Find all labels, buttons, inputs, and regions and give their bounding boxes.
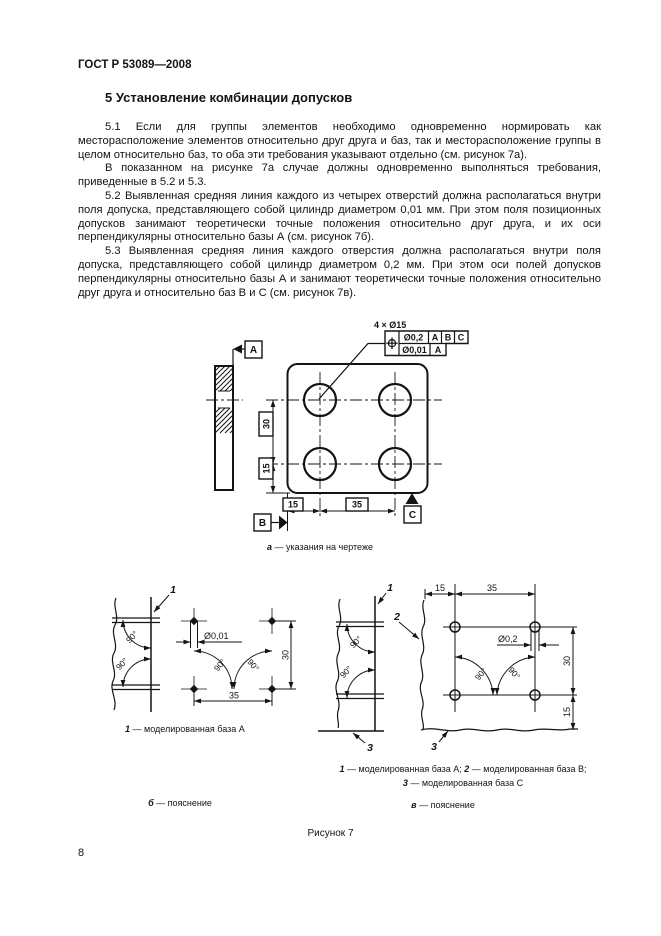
figure-7a-caption-text: — указания на чертеже bbox=[272, 542, 373, 552]
figure-7v-legend-2: 3 — моделированная база С bbox=[313, 778, 613, 788]
angle-90-b3: 90° bbox=[212, 657, 228, 673]
body-text: 5.1 Если для группы элементов необходимо… bbox=[78, 121, 601, 300]
ref-3-left-label: 3 bbox=[367, 742, 373, 754]
figure-7b-caption: б — пояснение bbox=[100, 798, 260, 808]
datum-b-label: B bbox=[259, 518, 266, 529]
fcf-datum-1b: B bbox=[445, 333, 452, 343]
hatch-top bbox=[215, 366, 233, 391]
zone-dia-001: Ø0,01 bbox=[204, 631, 229, 641]
ref-1-label: 1 bbox=[170, 584, 176, 596]
figure-7a-caption: а — указания на чертеже bbox=[200, 542, 440, 552]
datum-b-flag: B bbox=[254, 514, 288, 531]
figure-7b-legend: 1 — моделированная база А bbox=[125, 724, 245, 734]
datum-a-flag: A bbox=[233, 341, 262, 366]
holes-count-label: 4 × Ø15 bbox=[374, 320, 406, 330]
figure-7a-plate bbox=[266, 364, 442, 516]
paragraph-5-2: 5.2 Выявленная средняя линия каждого из … bbox=[78, 190, 601, 245]
figure-7a-drawing: A bbox=[200, 315, 500, 565]
angle-90-v4: 90° bbox=[506, 665, 522, 681]
paragraph-5-1-note: В показанном на рисунке 7а случае должны… bbox=[78, 162, 601, 190]
fcf-tolerance-1: Ø0,2 bbox=[404, 333, 424, 343]
figure-7v-front-view: 2 15 35 bbox=[393, 583, 578, 753]
dimension-bottom: 15 35 bbox=[283, 493, 395, 531]
dim-35-top: 35 bbox=[487, 583, 497, 593]
zone-dia-02: Ø0,2 bbox=[498, 634, 518, 644]
figure-7v-legend-1: 1 — моделированная база А; 2 — моделиров… bbox=[313, 764, 613, 774]
page-number: 8 bbox=[78, 847, 84, 859]
fcf-datum-1c: C bbox=[458, 333, 465, 343]
dim-35-horizontal: 35 bbox=[352, 500, 362, 510]
document-header: ГОСТ Р 53089—2008 bbox=[78, 59, 191, 71]
datum-c-label: C bbox=[409, 510, 416, 521]
legend-text-3v: — моделированная база С bbox=[408, 778, 523, 788]
figure-7b-front-view: Ø0,01 90° 90° 35 30 bbox=[176, 608, 296, 706]
section-heading: 5 Установление комбинации допусков bbox=[105, 90, 352, 105]
dim-15-top: 15 bbox=[435, 583, 445, 593]
angle-90-b1: 90° bbox=[124, 629, 140, 645]
datum-a-label: A bbox=[250, 345, 257, 356]
ref-2-label: 2 bbox=[393, 611, 400, 623]
angle-90-b2: 90° bbox=[114, 656, 130, 672]
dimension-left: 30 15 bbox=[259, 400, 290, 493]
figure-title: Рисунок 7 bbox=[0, 828, 661, 839]
legend-text-1v: — моделированная база А; bbox=[345, 764, 465, 774]
hatch-middle bbox=[215, 408, 233, 433]
fcf-leader-line bbox=[319, 344, 385, 400]
dim-30-vertical: 30 bbox=[261, 419, 271, 429]
dim-15-right: 15 bbox=[562, 707, 572, 717]
feature-control-frame: Ø0,2 A B C Ø0,01 A 4 × Ø15 bbox=[319, 320, 468, 399]
angle-90-v3: 90° bbox=[473, 666, 489, 682]
figure-7b-caption-text: — пояснение bbox=[154, 798, 212, 808]
dim-30-b: 30 bbox=[281, 650, 291, 660]
fcf-datum-1a: A bbox=[432, 333, 439, 343]
zone-diameter-dim-v: Ø0,2 bbox=[497, 629, 559, 651]
figure-7b-side-view: 90° 90° 1 bbox=[112, 584, 176, 712]
dim-15-horizontal: 15 bbox=[288, 500, 298, 510]
dim-30-right: 30 bbox=[562, 656, 572, 666]
ref-1-label-v: 1 bbox=[387, 582, 393, 594]
figure-7a-side-view bbox=[206, 366, 243, 490]
fcf-datum-2a: A bbox=[435, 345, 442, 355]
datum-c-flag: C bbox=[404, 493, 421, 523]
zone-diameter-dim-b: Ø0,01 bbox=[176, 621, 242, 648]
figure-7v-drawing: 90° 90° 1 3 2 bbox=[315, 575, 615, 760]
document-page: ГОСТ Р 53089—2008 5 Установление комбина… bbox=[0, 0, 661, 936]
dim-35-b: 35 bbox=[229, 691, 239, 701]
figure-7v-caption: в — пояснение bbox=[313, 800, 573, 810]
figure-7v-side-view: 90° 90° 1 3 bbox=[318, 582, 393, 754]
dim-15-vertical: 15 bbox=[261, 463, 271, 473]
legend-text-2v: — моделированная база В; bbox=[469, 764, 586, 774]
fcf-tolerance-2: Ø0,01 bbox=[402, 345, 427, 355]
angle-90-v2: 90° bbox=[338, 664, 354, 680]
paragraph-5-1: 5.1 Если для группы элементов необходимо… bbox=[78, 121, 601, 162]
legend-text-1: — моделированная база А bbox=[130, 724, 245, 734]
ref-3-right-label: 3 bbox=[431, 741, 437, 753]
paragraph-5-3: 5.3 Выявленная средняя линия каждого отв… bbox=[78, 245, 601, 300]
figure-7v-caption-text: — пояснение bbox=[417, 800, 475, 810]
